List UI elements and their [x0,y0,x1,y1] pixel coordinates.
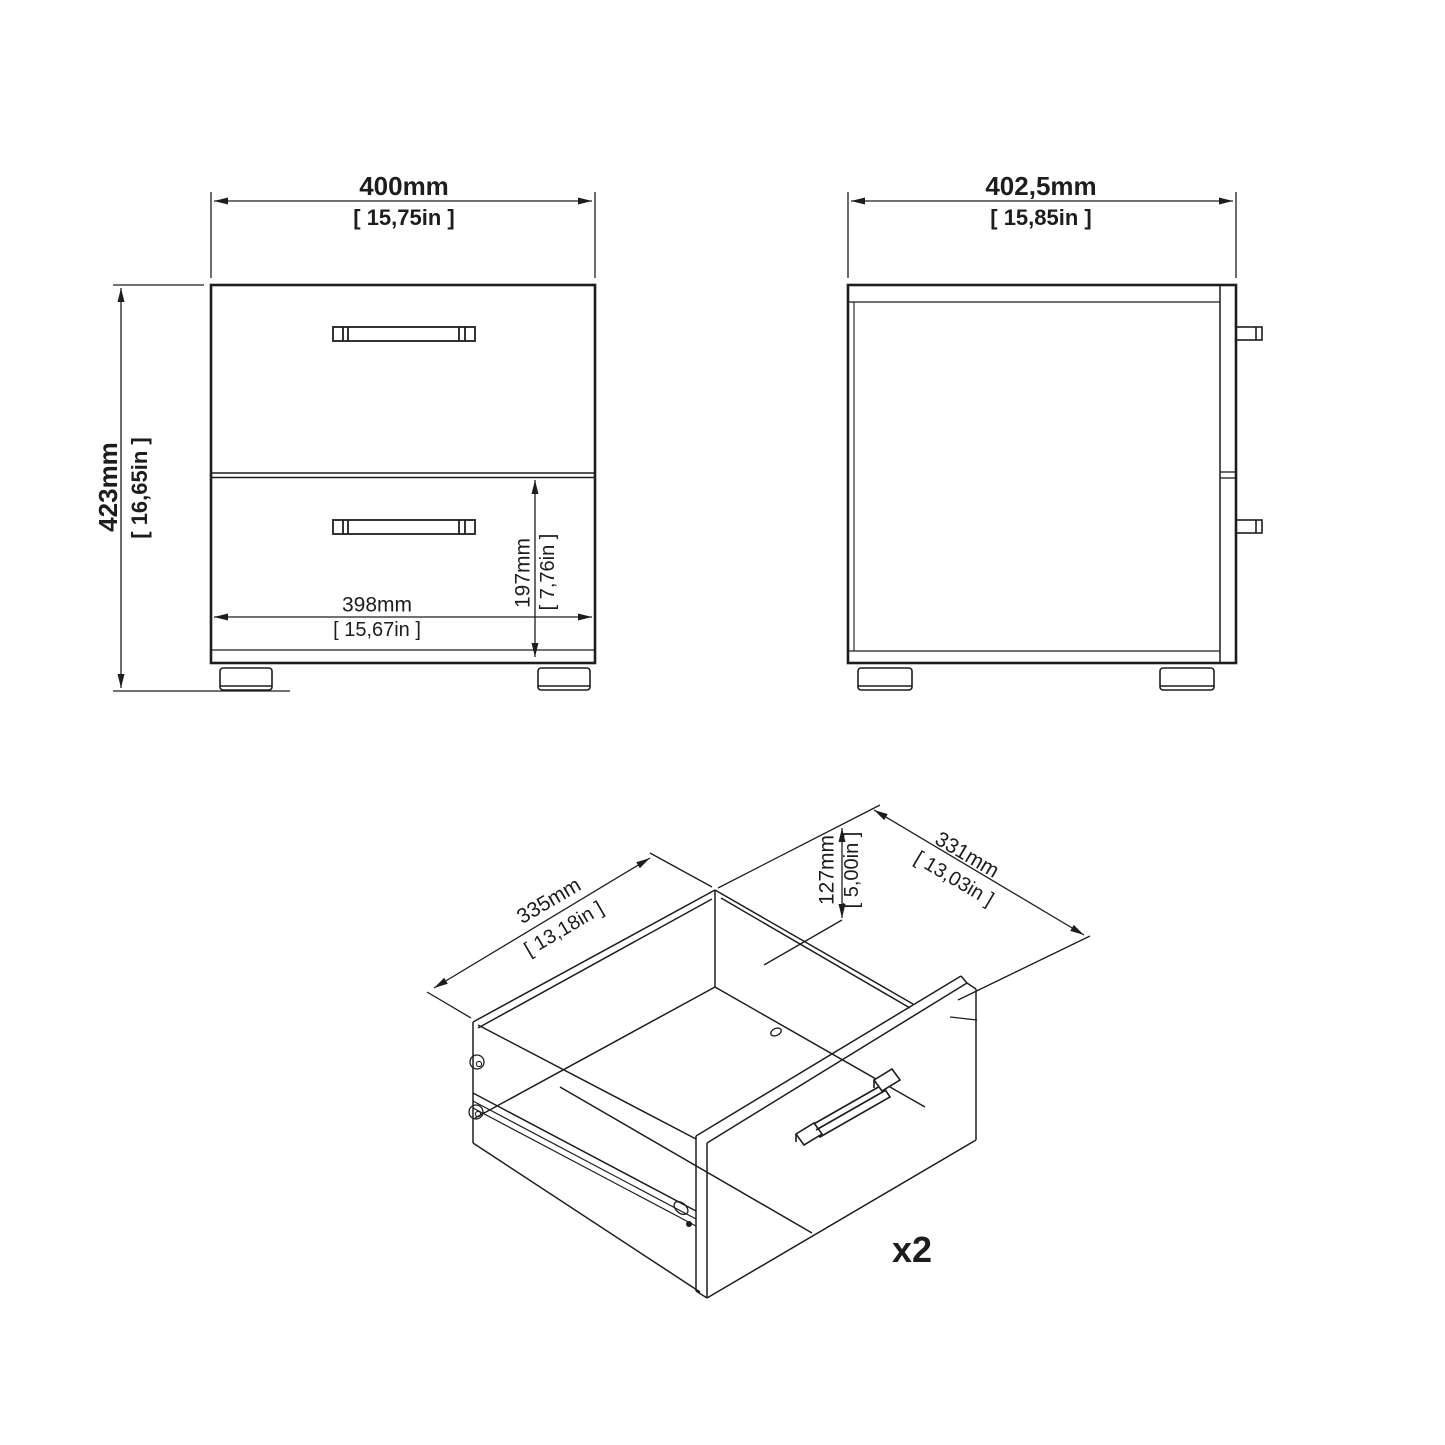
front-height-mm-label: 423mm [95,442,121,532]
side-handle-bottom [1236,520,1262,533]
front-drawer-height-mm-label: 197mm [513,538,534,608]
front-handle-bottom [333,520,475,534]
drawer-side-panel [469,1022,700,1292]
front-feet [220,668,590,690]
drawer-width-dimension [718,805,1090,1000]
rail-screw-front [686,1221,692,1227]
side-depth-in-label: [ 15,85in ] [990,207,1091,229]
front-drawer-height-in-label: [ 7,76in ] [538,534,558,611]
side-depth-mm-label: 402,5mm [985,173,1096,199]
side-feet [858,668,1214,690]
technical-drawing-canvas [0,0,1445,1445]
side-cabinet-outline [848,285,1236,663]
drawer-front-panel [696,976,977,1298]
dimension-diagram: 400mm [ 15,75in ] 423mm [ 16,65in ] 398m… [0,0,1445,1445]
drawer-height-in-label: [ 5,00in ] [842,832,862,909]
front-inner-width-mm-label: 398mm [342,595,412,616]
front-inner-width-in-label: [ 15,67in ] [333,620,421,640]
drawer-screw-hole [770,1027,783,1038]
drawer-height-mm-label: 127mm [817,835,838,905]
front-width-in-label: [ 15,75in ] [353,207,454,229]
front-width-mm-label: 400mm [359,173,449,199]
drawer-quantity-label: x2 [892,1232,932,1268]
front-height-in-label: [ 16,65in ] [129,437,151,538]
side-handle-top [1236,327,1262,340]
side-view [848,192,1262,690]
drawer-handle-iso [796,1069,900,1145]
front-handle-top [333,327,475,341]
